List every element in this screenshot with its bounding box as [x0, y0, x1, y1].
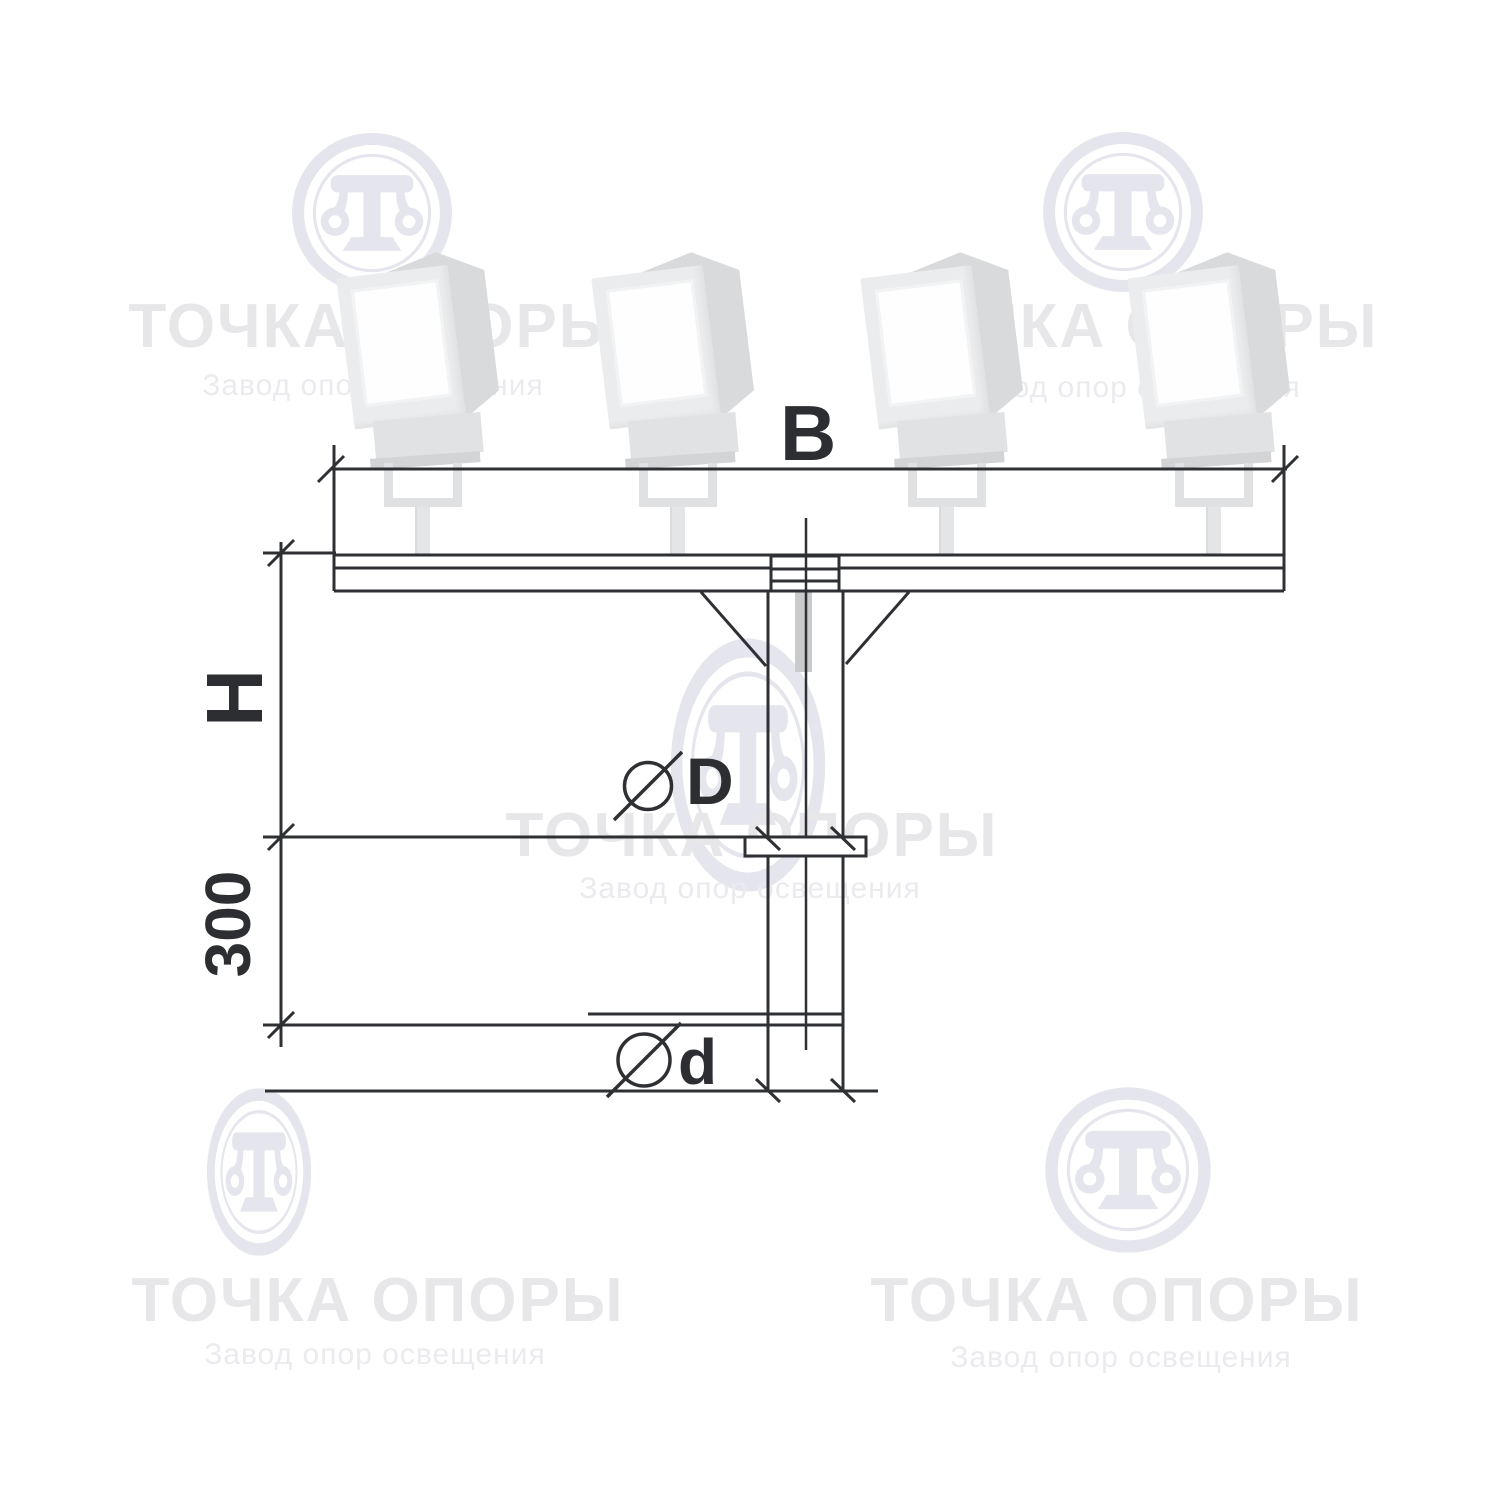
flange: [263, 827, 866, 856]
brace-right: [846, 592, 909, 664]
dimension-height-h: [263, 540, 336, 1047]
diameter-d-symbol: [607, 1023, 681, 1097]
dimension-label-b: B: [780, 394, 836, 472]
diameter-D-symbol: [614, 752, 682, 820]
ground-reference-lines: [263, 1014, 843, 1025]
dimension-label-d: d: [678, 1030, 717, 1094]
dimension-label-D: D: [686, 748, 734, 814]
inner-tube: [795, 591, 812, 672]
dimension-base-line: [265, 1079, 878, 1102]
dimension-label-300: 300: [183, 814, 273, 1034]
crossbar-connector: [771, 556, 839, 591]
pole-drawing-canvas: ТОЧКА ОПОРЫ ТОЧКА ОПОРЫ ТОЧКА ОПОРЫ ТОЧК…: [0, 0, 1501, 1501]
dimension-label-h: H: [189, 628, 281, 768]
brace-left: [701, 592, 766, 666]
